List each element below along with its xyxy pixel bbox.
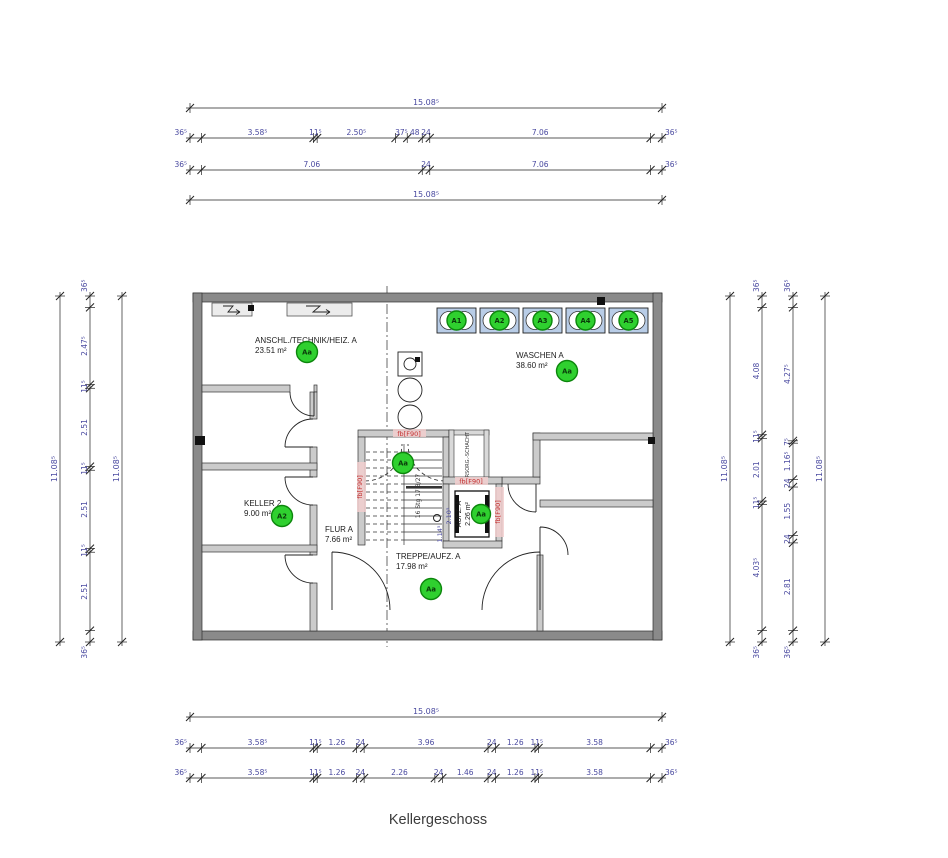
doors xyxy=(285,392,568,610)
dim-label: 2.50⁵ xyxy=(346,128,366,137)
wall-marker xyxy=(195,436,205,445)
dim-label: 36⁵ xyxy=(80,646,89,659)
dim-label: 2.51 xyxy=(80,501,89,518)
dim-label: 36⁵ xyxy=(752,646,761,659)
machine-label: A5 xyxy=(624,317,634,325)
fire-label: fb[F90] xyxy=(356,475,364,499)
dim-label: 3.58 xyxy=(586,738,603,747)
dim-label: 24 xyxy=(783,478,792,488)
stair-note: 16 Stg 17.8/27 xyxy=(415,474,422,519)
technik-appliances xyxy=(398,352,422,429)
elevator-width-dim: 1.14⁵ xyxy=(436,525,444,542)
outer-wall-bottom xyxy=(193,631,662,640)
dim-label: 1.46 xyxy=(457,768,474,777)
dim-label: 48 xyxy=(410,128,420,137)
outer-wall-right xyxy=(653,293,662,640)
dim-label: 1.26 xyxy=(329,768,346,777)
dim-label: 36⁵ xyxy=(665,128,678,137)
supply-shaft: VERSORG.-SCHACHT xyxy=(449,430,489,484)
dim-label: 11.08⁵ xyxy=(815,456,824,482)
floorplan-drawing: 15.08⁵36⁵3.58⁵11⁵2.50⁵37⁵48247.0636⁵36⁵7… xyxy=(0,0,948,858)
fire-label: fb[F90] xyxy=(459,478,483,486)
room-treppe-name: TREPPE/AUFZ. A xyxy=(396,552,461,561)
tank xyxy=(398,405,422,429)
door-swing xyxy=(285,555,313,583)
fire-label: fb[F90] xyxy=(494,500,502,524)
washing-machine: A1 xyxy=(437,308,476,333)
fire-label: fb[F90] xyxy=(397,430,421,438)
outer-wall-left xyxy=(193,293,202,640)
dim-label: 36⁵ xyxy=(665,768,678,777)
dim-label: 2.26 xyxy=(391,768,408,777)
unit-marker: Aa xyxy=(297,342,318,363)
machine-label: A2 xyxy=(495,317,505,325)
elevator-depth-dim: 2.10⁵ xyxy=(445,507,453,524)
room-waschen-name: WASCHEN A xyxy=(516,351,564,360)
dim-chain: 11.08⁵ xyxy=(720,292,735,646)
door-swing xyxy=(332,552,390,610)
room-flur-name: FLUR A xyxy=(325,525,354,534)
dim-label: 3.58⁵ xyxy=(248,738,268,747)
dim-label: 36⁵ xyxy=(174,160,187,169)
washing-machine: A5 xyxy=(609,308,648,333)
dim-label: 36⁵ xyxy=(783,646,792,659)
door-swing xyxy=(285,419,313,447)
dim-label: 1.26 xyxy=(507,768,524,777)
dim-chain: 15.08⁵ xyxy=(186,190,666,205)
dim-label: 11.08⁵ xyxy=(50,456,59,482)
dim-label: 37⁵ xyxy=(395,128,408,137)
dim-label: 3.58⁵ xyxy=(248,768,268,777)
dim-label: 36⁵ xyxy=(783,279,792,292)
marker-label: A2 xyxy=(277,513,287,521)
wall-marker xyxy=(248,305,254,311)
dim-label: 1.16⁵ xyxy=(783,451,792,471)
dim-label: 24 xyxy=(783,534,792,544)
unit-marker: Aa xyxy=(557,361,578,382)
dim-label: 15.08⁵ xyxy=(413,98,439,107)
marker-label: Aa xyxy=(398,460,408,468)
door-swing xyxy=(285,477,313,505)
dim-chain: 36⁵3.58⁵11⁵2.50⁵37⁵48247.0636⁵ xyxy=(174,128,677,143)
outer-wall-top xyxy=(193,293,662,302)
machine-label: A3 xyxy=(538,317,548,325)
dim-label: 3.58⁵ xyxy=(248,128,268,137)
unit-marker: A2 xyxy=(272,506,293,527)
dim-chain: 15.08⁵ xyxy=(186,98,666,113)
dim-label: 2.01 xyxy=(752,461,761,478)
dim-chain: 36⁵3.58⁵11⁵1.26242.26241.46241.2611⁵3.58… xyxy=(174,768,677,783)
door-swing xyxy=(482,552,540,610)
dim-label: 1.55 xyxy=(783,503,792,520)
dim-chain: 36⁵7.06247.0636⁵ xyxy=(174,160,677,175)
dim-label: 3.96 xyxy=(418,738,435,747)
dim-chain: 36⁵4.27⁵7⁵1.16⁵241.55242.8136⁵ xyxy=(783,279,798,658)
window-opening xyxy=(287,303,352,316)
washing-machines: A1A2A3A4A5 xyxy=(437,308,648,333)
dim-label: 7.06 xyxy=(532,128,549,137)
marker-label: Aa xyxy=(426,586,436,594)
dim-label: 7⁵ xyxy=(783,438,792,446)
machine-label: A1 xyxy=(452,317,462,325)
unit-marker: Aa xyxy=(472,505,491,524)
dim-label: 2.51 xyxy=(80,583,89,600)
dim-label: 2.51 xyxy=(80,419,89,436)
room-treppe-area: 17.98 m² xyxy=(396,562,428,571)
dim-label: 11.08⁵ xyxy=(720,456,729,482)
room-waschen-area: 38.60 m² xyxy=(516,361,548,370)
dim-label: 4.27⁵ xyxy=(783,364,792,384)
dim-chain: 11.08⁵ xyxy=(50,292,65,646)
sheet-title: Kellergeschoss xyxy=(338,812,538,828)
wall-marker xyxy=(597,297,605,305)
dim-label: 4.08 xyxy=(752,362,761,379)
tank xyxy=(398,378,422,402)
unit-marker: Aa xyxy=(421,579,442,600)
wall-marker xyxy=(648,437,655,444)
washing-machine: A2 xyxy=(480,308,519,333)
dim-label: 1.26 xyxy=(507,738,524,747)
room-aufzug-name: AUFZ. A xyxy=(456,500,463,527)
dim-label: 2.47⁵ xyxy=(80,336,89,356)
dim-label: 2.81 xyxy=(783,578,792,595)
dim-label: 7.06 xyxy=(532,160,549,169)
room-flur-area: 7.66 m² xyxy=(325,535,352,544)
window-opening xyxy=(212,303,252,316)
dim-label: 36⁵ xyxy=(665,738,678,747)
dim-label: 4.03⁵ xyxy=(752,558,761,578)
room-keller2-area: 9.00 m² xyxy=(244,509,271,518)
elevator: AUFZ. A 2.26 m² 2.10⁵ 1.14⁵ xyxy=(436,477,502,548)
washing-machine: A3 xyxy=(523,308,562,333)
dim-chain: 11.08⁵ xyxy=(112,292,127,646)
washing-machine: A4 xyxy=(566,308,605,333)
dimension-chains: 15.08⁵36⁵3.58⁵11⁵2.50⁵37⁵48247.0636⁵36⁵7… xyxy=(50,98,830,783)
dim-label: 36⁵ xyxy=(752,279,761,292)
dim-chain: 36⁵2.47⁵11⁵2.5111⁵2.5111⁵2.5136⁵ xyxy=(80,279,95,658)
dim-label: 15.08⁵ xyxy=(413,707,439,716)
dim-label: 36⁵ xyxy=(174,128,187,137)
dim-chain: 36⁵4.0811⁵2.0111⁵4.03⁵36⁵ xyxy=(752,279,767,658)
dim-chain: 36⁵3.58⁵11⁵1.26243.96241.2611⁵3.5836⁵ xyxy=(174,738,677,753)
dim-chain: 15.08⁵ xyxy=(186,707,666,722)
room-technik-area: 23.51 m² xyxy=(255,346,287,355)
dim-label: 1.26 xyxy=(329,738,346,747)
marker-label: Aa xyxy=(476,511,486,519)
shaft-label: VERSORG.-SCHACHT xyxy=(465,431,471,484)
windows xyxy=(212,303,352,316)
marker-label: Aa xyxy=(562,368,572,376)
drawing-sheet: 15.08⁵36⁵3.58⁵11⁵2.50⁵37⁵48247.0636⁵36⁵7… xyxy=(0,0,948,858)
dim-label: 36⁵ xyxy=(174,738,187,747)
door-swing xyxy=(540,527,568,555)
dim-label: 3.58 xyxy=(586,768,603,777)
dim-label: 7.06 xyxy=(303,160,320,169)
marker-label: Aa xyxy=(302,349,312,357)
dim-label: 15.08⁵ xyxy=(413,190,439,199)
dim-label: 11.08⁵ xyxy=(112,456,121,482)
machine-label: A4 xyxy=(581,317,591,325)
dim-label: 36⁵ xyxy=(80,279,89,292)
dim-label: 36⁵ xyxy=(174,768,187,777)
dim-chain: 11.08⁵ xyxy=(815,292,830,646)
unit-marker: Aa xyxy=(393,453,414,474)
dim-label: 36⁵ xyxy=(665,160,678,169)
door-swing xyxy=(508,484,536,512)
